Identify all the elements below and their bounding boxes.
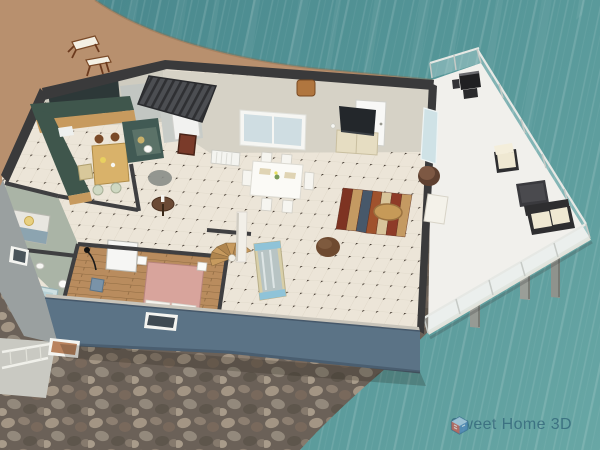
radiator bbox=[211, 150, 240, 166]
3d-viewport[interactable]: Sweet Home 3D bbox=[0, 0, 600, 450]
deck-glass-door bbox=[421, 108, 438, 164]
sweet-home-3d-logo-icon bbox=[450, 416, 469, 435]
bedroom-door bbox=[106, 240, 138, 272]
swivel-armchair bbox=[418, 166, 440, 186]
dining-window bbox=[240, 110, 306, 150]
kitchen-chair bbox=[78, 164, 93, 180]
sweet-home-3d-watermark: Sweet Home 3D bbox=[450, 416, 572, 434]
column bbox=[236, 212, 247, 262]
tv bbox=[339, 106, 376, 135]
chaise-lounge bbox=[424, 194, 448, 224]
nightstand bbox=[197, 262, 207, 271]
bath-sink bbox=[36, 263, 44, 269]
nightstand bbox=[137, 256, 147, 265]
outdoor-bench bbox=[297, 80, 315, 96]
walkway-ramp bbox=[0, 338, 56, 398]
desk-chair bbox=[90, 278, 104, 292]
front-window-2 bbox=[144, 312, 178, 331]
wc-room bbox=[122, 118, 164, 163]
picture-frame bbox=[178, 134, 196, 155]
round-rug bbox=[148, 170, 172, 186]
cup bbox=[331, 124, 335, 128]
leaning-mirror bbox=[254, 241, 286, 300]
house bbox=[0, 60, 448, 386]
